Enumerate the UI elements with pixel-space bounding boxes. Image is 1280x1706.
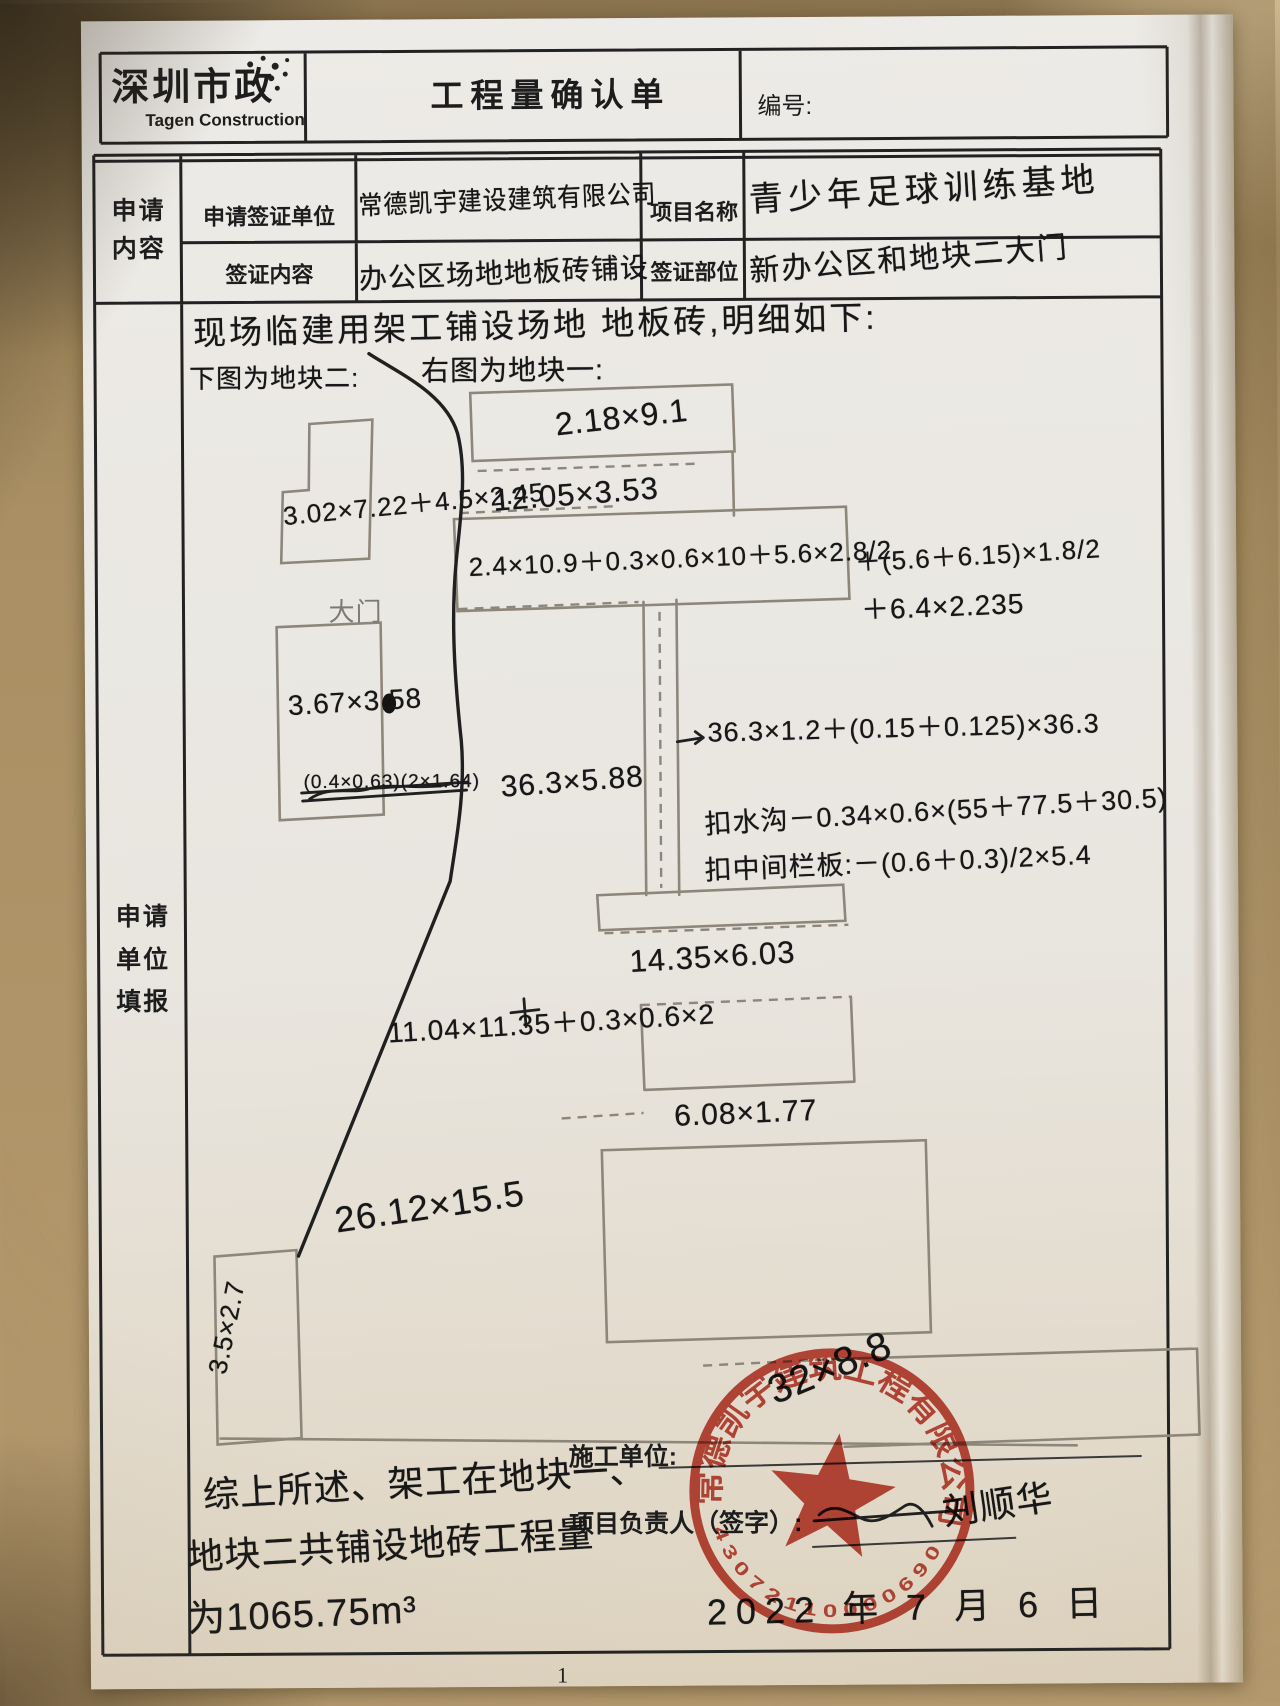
page-number: 1	[557, 1662, 568, 1687]
logo-text-cn: 深圳市政	[111, 66, 275, 111]
number-label: 编号:	[757, 93, 812, 121]
company-stamp-svg: 常德凯宇建筑工程有限公司 43072110000690	[663, 1322, 1000, 1659]
stamp-star-icon	[761, 1425, 901, 1560]
dim-6-4x2-235: ＋6.4×2.235	[860, 588, 1025, 627]
field-label-visa-content: 签证内容	[184, 262, 354, 288]
company-stamp: 常德凯宇建筑工程有限公司 43072110000690	[663, 1322, 1000, 1659]
field-label-apply-unit: 申请签证单位	[184, 204, 354, 230]
logo-text-en: Tagen Construction	[145, 110, 304, 131]
left-label-apply-content: 申请 内容	[96, 193, 181, 269]
photo-background: 深圳市政 Tagen Construction 工程量确认单 编号: 申请 内容…	[0, 0, 1280, 1706]
gate-label: 大门	[328, 598, 382, 628]
note-block2-caption: 下图为地块二:	[189, 364, 359, 395]
note-block1-caption: 右图为地块一:	[421, 354, 604, 387]
field-label-project-name: 项目名称	[644, 199, 744, 225]
dim-struck-out: (0.4×0.63)(2×1.64)	[303, 771, 480, 794]
field-label-visa-part: 签证部位	[644, 259, 744, 285]
dim-6-08x1-77: 6.08×1.77	[674, 1094, 819, 1134]
form-title: 工程量确认单	[375, 75, 725, 115]
left-label-apply-unit-fill: 申请 单位 填报	[100, 896, 186, 1024]
paper-tilt-wrapper: 深圳市政 Tagen Construction 工程量确认单 编号: 申请 内容…	[0, 0, 1280, 1706]
